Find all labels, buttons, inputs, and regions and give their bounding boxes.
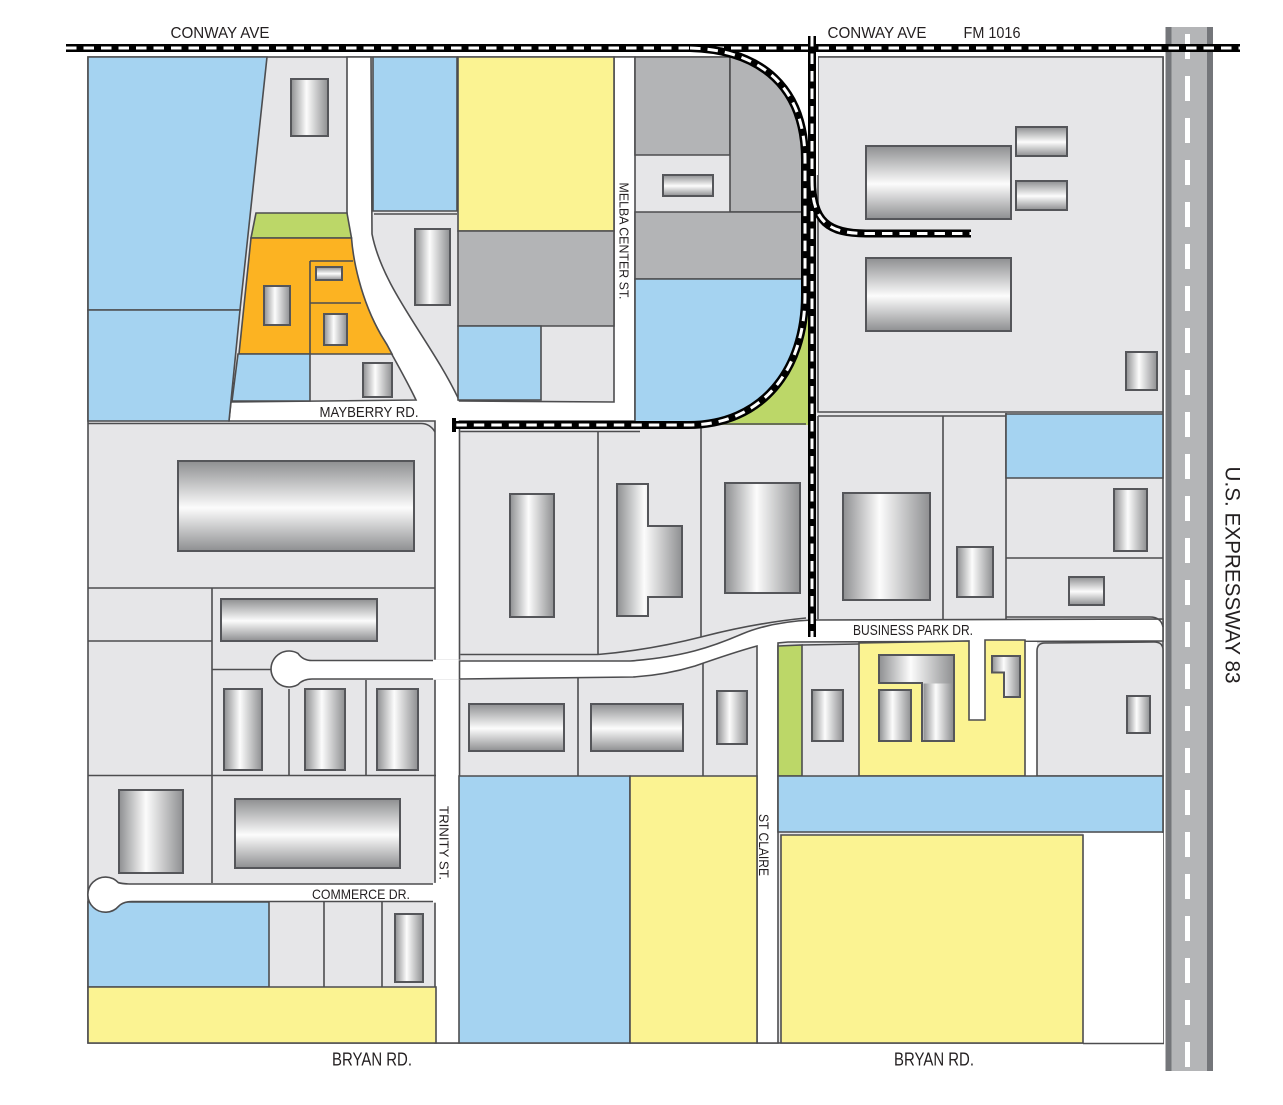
svg-text:MELBA CENTER ST.: MELBA CENTER ST. [617,183,632,300]
svg-text:BRYAN RD.: BRYAN RD. [332,1050,412,1070]
svg-text:ST CLAIRE: ST CLAIRE [756,814,772,876]
svg-text:BRYAN RD.: BRYAN RD. [894,1050,974,1070]
svg-text:CONWAY AVE: CONWAY AVE [171,25,270,42]
svg-text:MAYBERRY RD.: MAYBERRY RD. [320,404,419,421]
svg-text:BUSINESS PARK DR.: BUSINESS PARK DR. [853,622,973,639]
svg-text:TRINITY ST.: TRINITY ST. [437,806,452,880]
svg-text:COMMERCE DR.: COMMERCE DR. [312,886,410,902]
svg-text:CONWAY AVE: CONWAY AVE [828,25,927,42]
svg-text:U.S. EXPRESSWAY 83: U.S. EXPRESSWAY 83 [1221,467,1244,684]
svg-text:FM 1016: FM 1016 [964,25,1021,42]
